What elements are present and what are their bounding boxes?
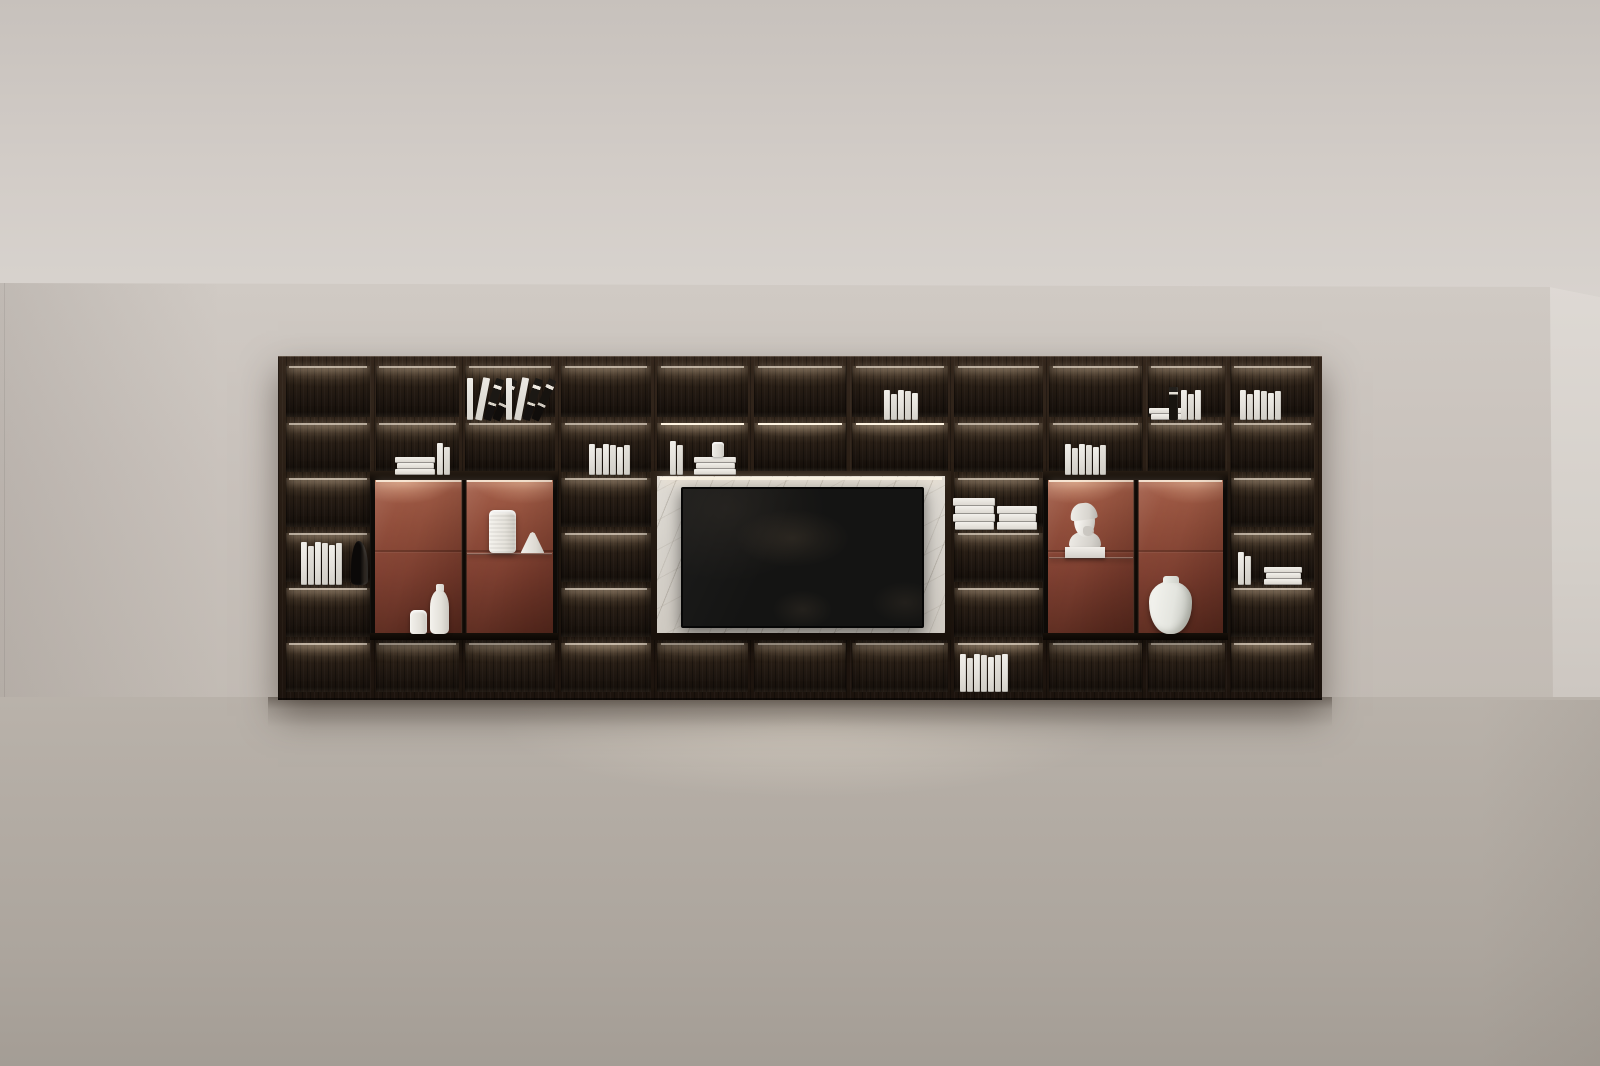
leaning-books <box>467 374 503 420</box>
book <box>1093 447 1099 475</box>
book-row <box>670 441 684 475</box>
shelf-cubby <box>754 366 846 417</box>
book <box>677 445 683 475</box>
book <box>1002 654 1008 692</box>
wall-corner-left <box>4 283 5 698</box>
book <box>955 522 994 530</box>
teacup <box>712 442 724 457</box>
book-row <box>1238 552 1252 585</box>
book <box>988 657 994 692</box>
book <box>1065 444 1071 475</box>
shelf-cubby <box>954 423 1043 472</box>
ceiling <box>0 0 1600 298</box>
book <box>953 514 995 522</box>
book <box>1072 448 1078 475</box>
book <box>596 448 602 475</box>
book <box>891 394 897 420</box>
book <box>322 543 328 585</box>
book-row <box>1240 390 1282 420</box>
book <box>329 545 335 585</box>
shelf-cubby <box>954 366 1043 417</box>
shelf-cubby <box>286 643 370 692</box>
shelf-cubby <box>1148 643 1225 692</box>
book <box>1268 393 1274 420</box>
bust-helmet <box>1069 501 1098 521</box>
book <box>1275 391 1281 420</box>
book <box>997 506 1037 514</box>
book <box>336 543 342 585</box>
book-row <box>960 654 1009 692</box>
floor-corner-shade <box>1480 700 1600 1066</box>
book-row <box>437 443 451 475</box>
book <box>981 655 987 692</box>
shelf-cubby <box>286 478 370 527</box>
book <box>1247 394 1253 420</box>
shelf-cubby <box>1049 643 1142 692</box>
shelf-cubby <box>657 643 748 692</box>
tv-media-panel <box>651 471 951 640</box>
book <box>995 655 1001 692</box>
book <box>1238 552 1244 585</box>
shelf-cubby <box>561 366 651 417</box>
book-stack <box>694 457 736 475</box>
book <box>589 444 595 475</box>
shelf-cubby <box>954 588 1043 637</box>
shelf-cubby <box>561 478 651 527</box>
shelf-cubby <box>561 533 651 582</box>
book <box>1086 445 1092 475</box>
book <box>1181 390 1187 420</box>
book <box>1151 414 1184 420</box>
cabinet-base-rail <box>370 633 558 640</box>
book <box>308 546 314 585</box>
book <box>467 378 473 420</box>
book-row <box>1065 444 1107 475</box>
book <box>967 658 973 692</box>
shelf-cubby <box>286 366 370 417</box>
shelf-cubby <box>376 643 459 692</box>
book <box>1195 390 1201 420</box>
shelf-cubby <box>1231 423 1314 472</box>
book <box>1254 390 1260 420</box>
shelf-cubby <box>852 643 948 692</box>
book-stack <box>1149 408 1185 420</box>
shelf-cubby <box>376 366 459 417</box>
book <box>999 514 1036 522</box>
wall-shading-left <box>0 280 260 705</box>
shelf-cubby <box>465 423 555 472</box>
leaning-books <box>506 374 542 420</box>
book <box>953 498 995 506</box>
book-row <box>301 542 343 585</box>
cabinet-door-divider <box>462 480 467 633</box>
book <box>301 542 307 585</box>
book <box>997 522 1037 530</box>
shelf-cubby <box>657 366 748 417</box>
shelf-cubby <box>561 643 651 692</box>
tall-white-vase <box>430 590 449 634</box>
cylinder-white-vase <box>489 510 516 553</box>
book <box>1264 579 1302 585</box>
shelf-cubby <box>1231 478 1314 527</box>
book <box>694 469 736 475</box>
book <box>884 390 890 420</box>
book-row <box>884 390 919 420</box>
shelf-cubby <box>1231 588 1314 637</box>
book-row <box>589 444 631 475</box>
shelf-cubby <box>754 423 846 472</box>
shelf-cubby <box>852 423 948 472</box>
book <box>617 447 623 475</box>
book <box>506 378 512 420</box>
small-white-vase <box>410 610 427 634</box>
book <box>960 654 966 692</box>
dark-book <box>1169 387 1178 420</box>
shelf-cubby <box>561 588 651 637</box>
shelf-cubby <box>954 533 1043 582</box>
book <box>395 469 435 475</box>
shelf-cubby <box>286 588 370 637</box>
book <box>444 447 450 475</box>
floor-contact-shadow <box>268 697 1332 727</box>
bust-plinth <box>1065 547 1105 558</box>
book <box>670 441 676 475</box>
shelf-cubby <box>754 643 846 692</box>
cabinet-glass-door-right <box>466 480 553 633</box>
book <box>603 444 609 475</box>
display-cabinet-left <box>370 471 558 640</box>
book <box>912 393 918 420</box>
cabinet-base-rail <box>1043 633 1228 640</box>
cabinet-glass-shelf <box>467 553 552 555</box>
shelf-cubby <box>286 423 370 472</box>
book <box>624 445 630 475</box>
book <box>1245 556 1251 585</box>
book-row <box>1181 390 1202 420</box>
book <box>437 443 443 475</box>
shelf-cubby <box>1148 423 1225 472</box>
book <box>1188 394 1194 420</box>
shelf-cubby <box>465 643 555 692</box>
classical-bust <box>1063 486 1107 558</box>
book <box>315 542 321 585</box>
book <box>1100 445 1106 475</box>
book-stack <box>1264 567 1302 585</box>
shelf-cubby <box>1231 643 1314 692</box>
book <box>1079 444 1085 475</box>
book <box>905 391 911 420</box>
book-pile <box>953 498 995 530</box>
tv-screen <box>681 487 924 628</box>
bust-beard <box>1083 526 1094 536</box>
floor-light-reflection <box>430 700 1190 890</box>
book <box>1240 390 1246 420</box>
book-pile <box>997 506 1037 530</box>
book <box>974 654 980 692</box>
book <box>1261 391 1267 420</box>
book-stack <box>395 457 435 475</box>
rendered-room-scene <box>0 0 1600 1066</box>
book <box>610 445 616 475</box>
shelf-cubby <box>1049 366 1142 417</box>
book <box>898 390 904 420</box>
cabinet-door-divider <box>1133 480 1138 633</box>
book <box>955 506 994 514</box>
